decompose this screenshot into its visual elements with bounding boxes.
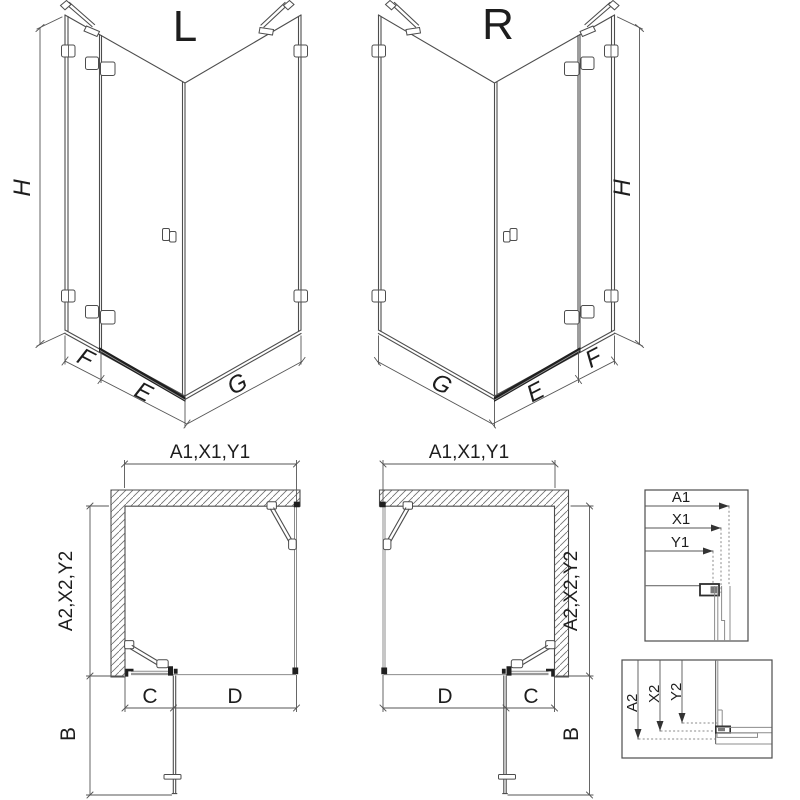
detail-box-depth: A2 X2 Y2 bbox=[622, 660, 772, 758]
detail-x2-label: X2 bbox=[646, 685, 663, 703]
iso-right-dim-h: H bbox=[609, 179, 636, 197]
plan-left-depth-label: A2,X2,Y2 bbox=[56, 551, 77, 631]
detail-y1-label: Y1 bbox=[671, 534, 689, 551]
plan-right-depth-label: A2,X2,Y2 bbox=[561, 551, 582, 631]
plan-right-c-label: C bbox=[523, 685, 538, 708]
iso-right-title: R bbox=[482, 0, 514, 49]
detail-x1-label: X1 bbox=[672, 511, 690, 528]
detail-box-width: A1 X1 Y1 bbox=[645, 489, 748, 641]
plan-left-b-label: B bbox=[57, 727, 80, 741]
plan-left-width-label: A1,X1,Y1 bbox=[170, 442, 250, 463]
drawing-svg: L R H F E G H G E F A1,X1,Y1 A2,X2,Y2 C … bbox=[0, 0, 800, 800]
plan-left-c-label: C bbox=[142, 685, 157, 708]
detail-a1-label: A1 bbox=[672, 489, 690, 506]
plan-right-width-label: A1,X1,Y1 bbox=[429, 442, 509, 463]
plan-left-d-label: D bbox=[227, 685, 242, 708]
plan-right-b-label: B bbox=[560, 727, 583, 741]
detail-y2-label: Y2 bbox=[668, 683, 685, 701]
shower-enclosure-technical-drawing: L R H F E G H G E F A1,X1,Y1 A2,X2,Y2 C … bbox=[0, 0, 800, 800]
iso-left-title: L bbox=[173, 2, 197, 51]
plan-right-d-label: D bbox=[437, 685, 452, 708]
iso-left-dim-h: H bbox=[9, 179, 36, 197]
detail-a2-label: A2 bbox=[624, 694, 641, 712]
